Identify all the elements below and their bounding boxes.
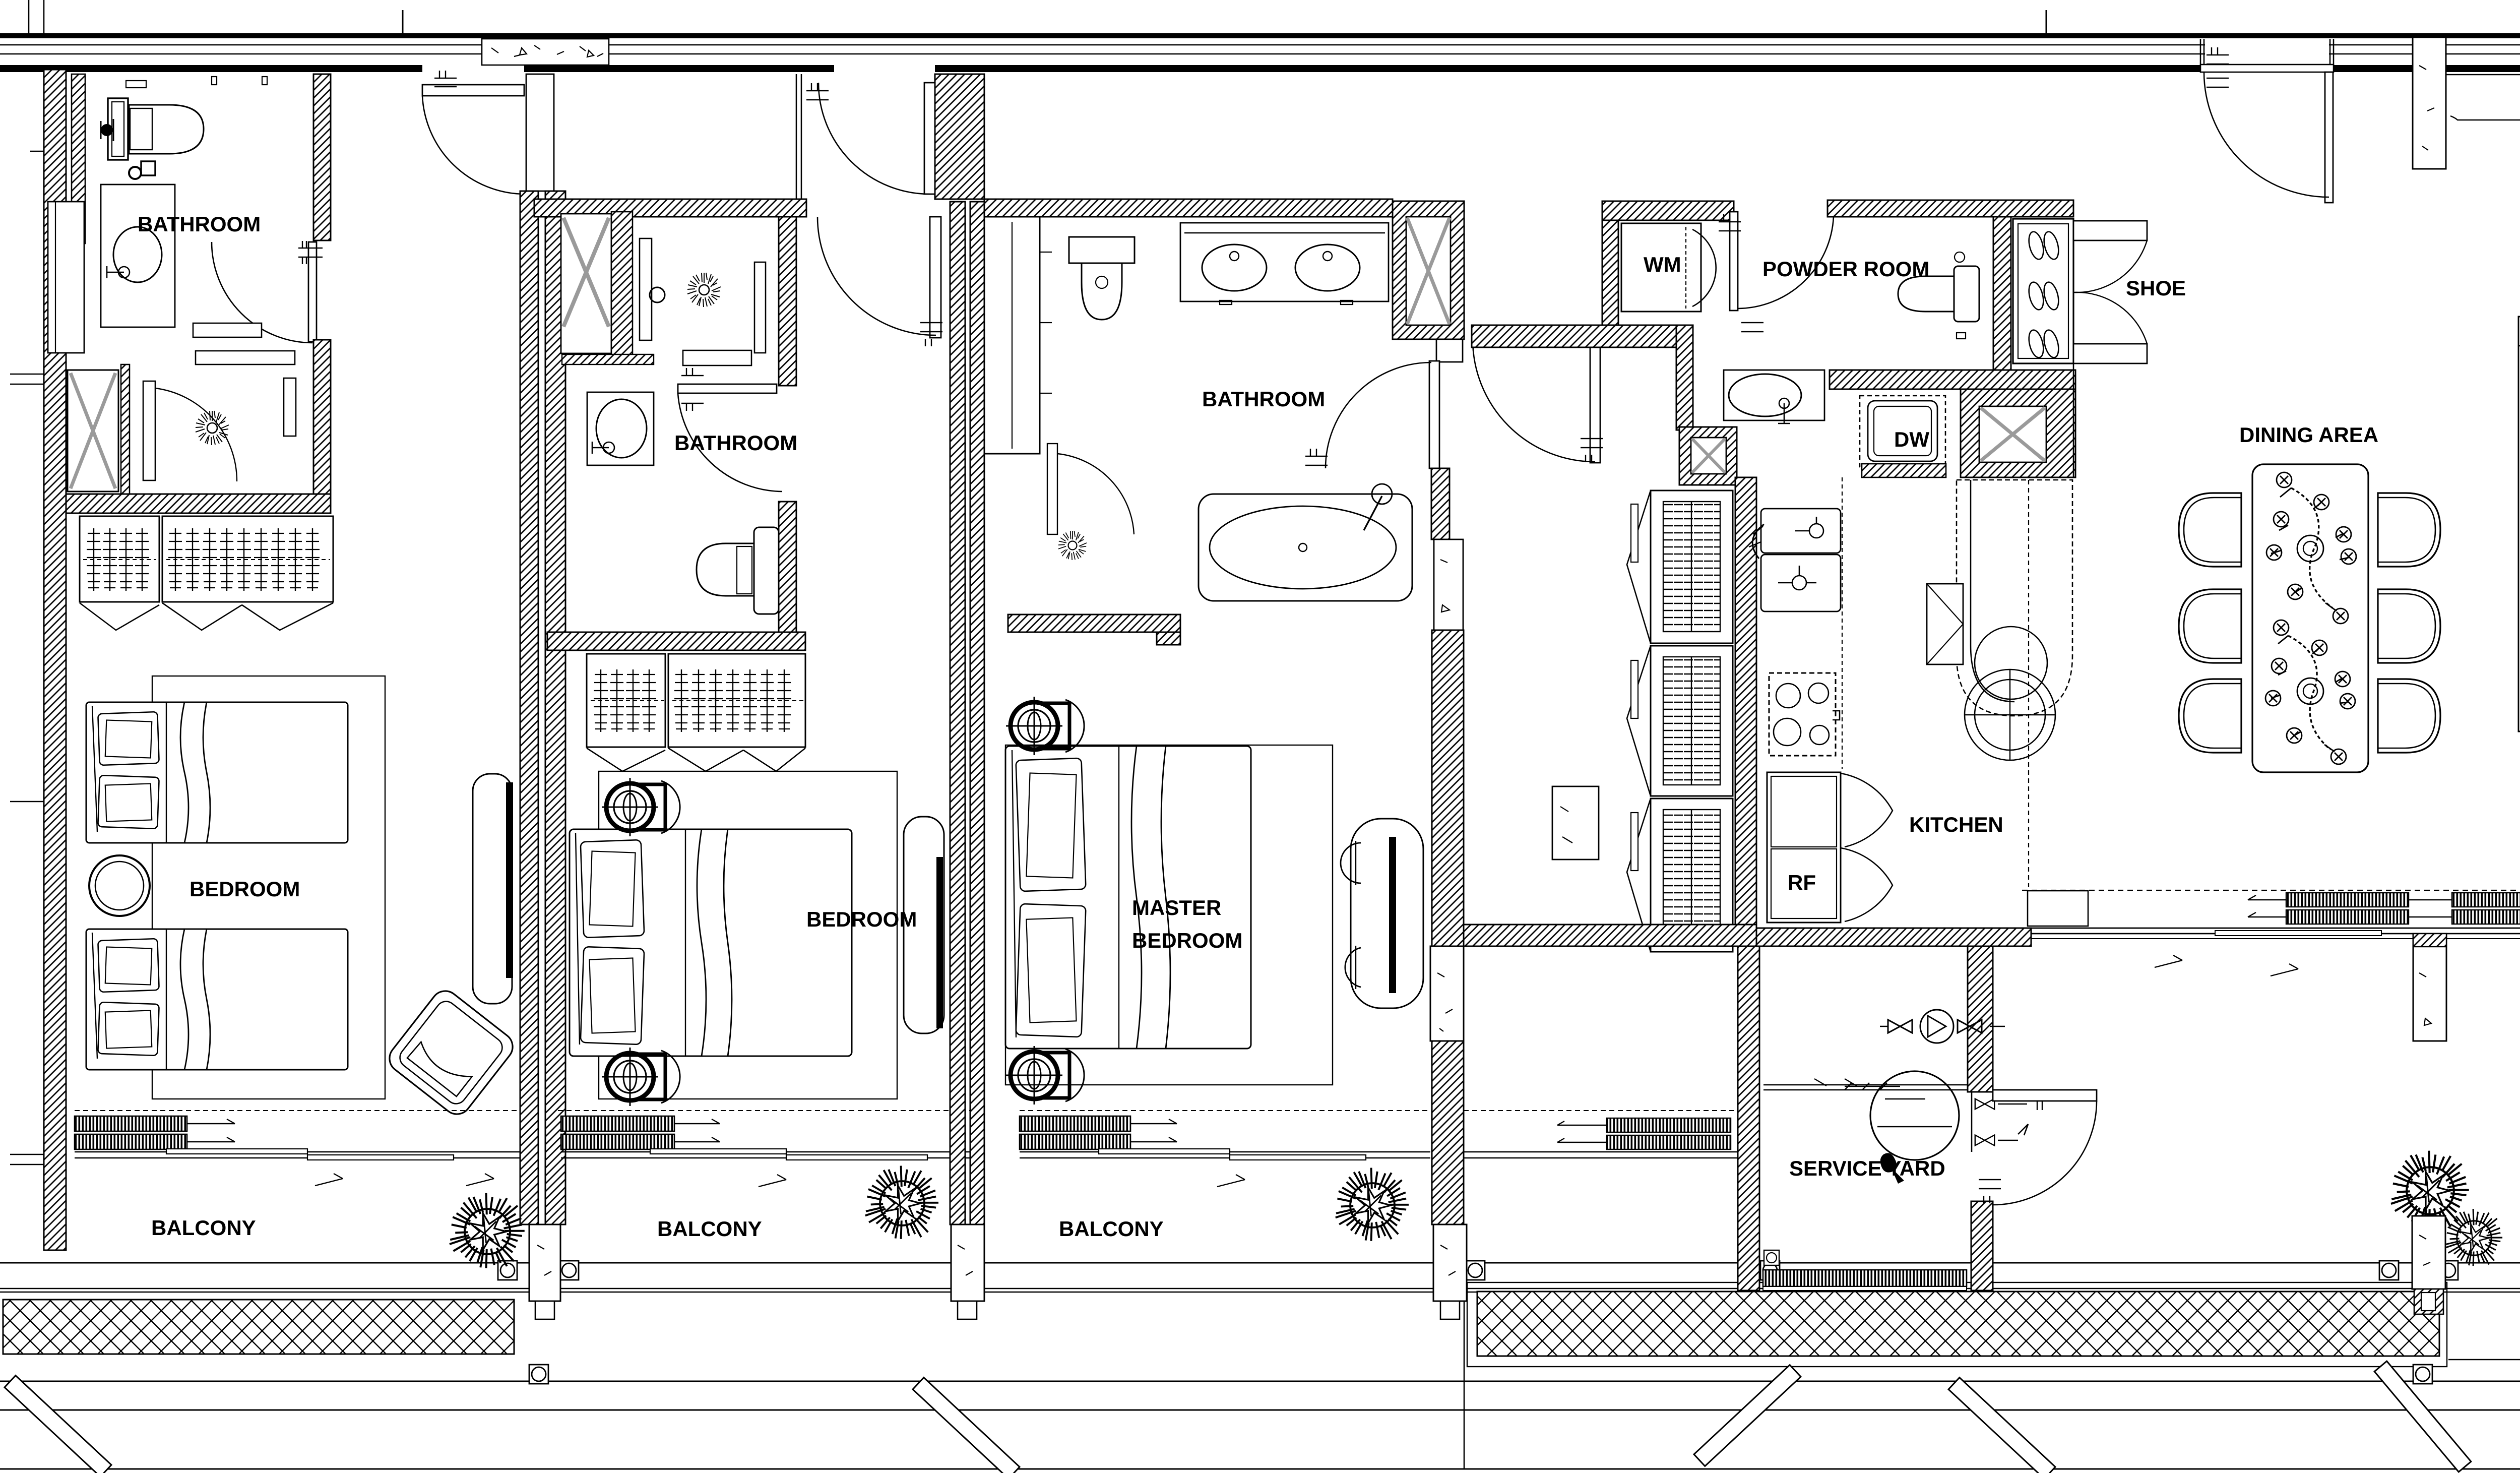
svg-text:RF: RF: [1788, 871, 1816, 894]
svg-text:MASTER: MASTER: [1132, 896, 1221, 919]
svg-text:SERVICE YARD: SERVICE YARD: [1789, 1156, 1945, 1180]
svg-text:BEDROOM: BEDROOM: [806, 907, 917, 931]
svg-text:DINING AREA: DINING AREA: [2239, 423, 2378, 447]
svg-text:BEDROOM: BEDROOM: [1132, 929, 1242, 952]
svg-text:DW: DW: [1894, 427, 1929, 451]
svg-text:BATHROOM: BATHROOM: [138, 212, 261, 236]
svg-text:KITCHEN: KITCHEN: [1909, 813, 2003, 836]
svg-text:BALCONY: BALCONY: [657, 1217, 762, 1241]
svg-text:SHOE: SHOE: [2126, 276, 2186, 300]
svg-text:BATHROOM: BATHROOM: [1202, 387, 1325, 411]
svg-text:BALCONY: BALCONY: [151, 1216, 256, 1240]
svg-text:BATHROOM: BATHROOM: [674, 431, 797, 455]
svg-text:BEDROOM: BEDROOM: [190, 877, 300, 901]
svg-text:BALCONY: BALCONY: [1059, 1217, 1164, 1241]
svg-text:WM: WM: [1644, 253, 1681, 276]
svg-text:POWDER ROOM: POWDER ROOM: [1762, 257, 1929, 281]
